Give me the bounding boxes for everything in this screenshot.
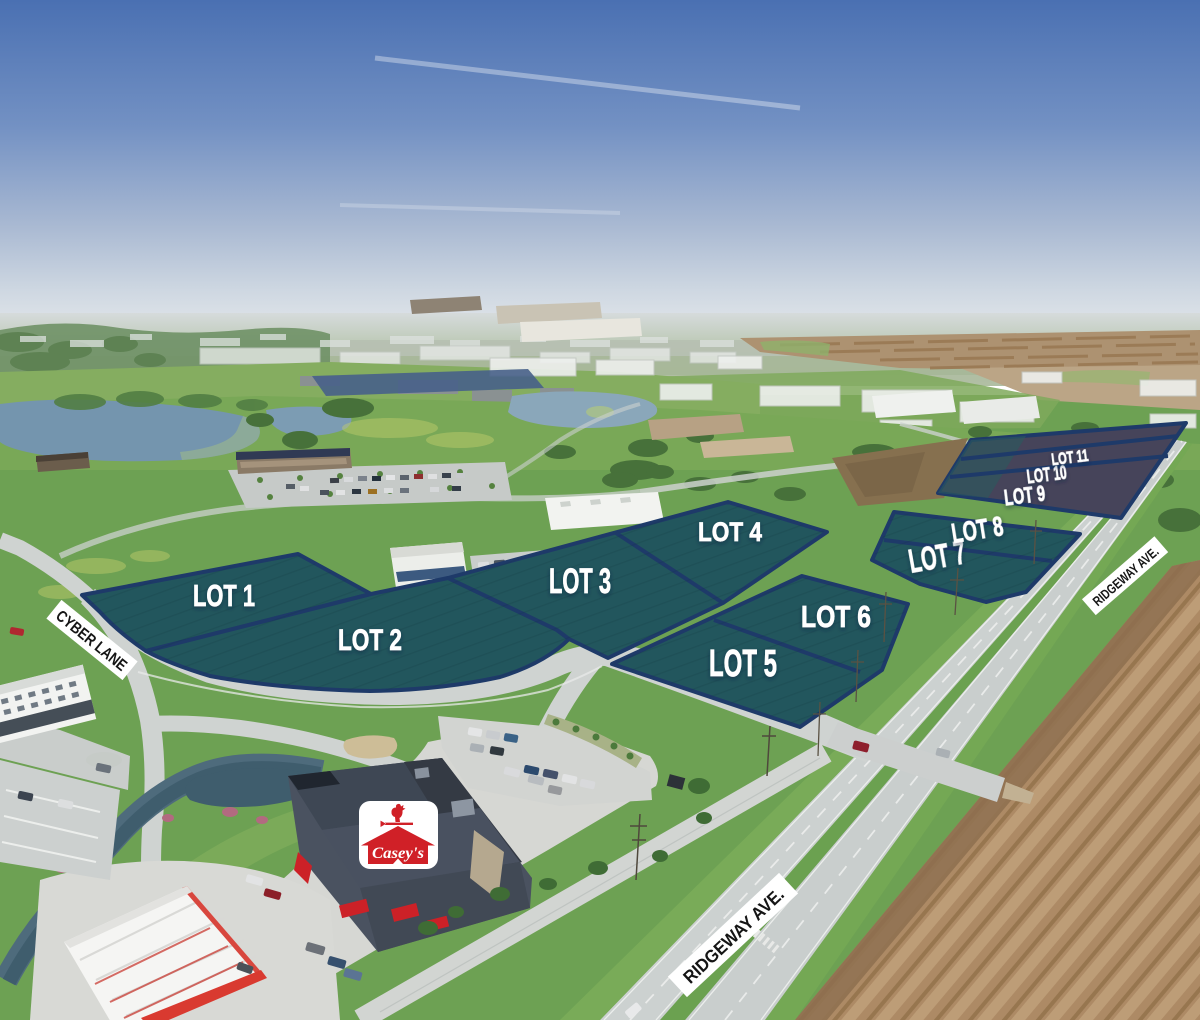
svg-text:LOT 3: LOT 3: [549, 562, 611, 601]
svg-text:LOT 4: LOT 4: [698, 517, 762, 547]
svg-text:LOT 2: LOT 2: [338, 624, 402, 657]
svg-text:Casey's: Casey's: [372, 845, 424, 862]
svg-text:LOT 6: LOT 6: [801, 599, 871, 634]
svg-text:LOT 1: LOT 1: [193, 578, 255, 613]
svg-text:LOT 5: LOT 5: [709, 643, 777, 685]
